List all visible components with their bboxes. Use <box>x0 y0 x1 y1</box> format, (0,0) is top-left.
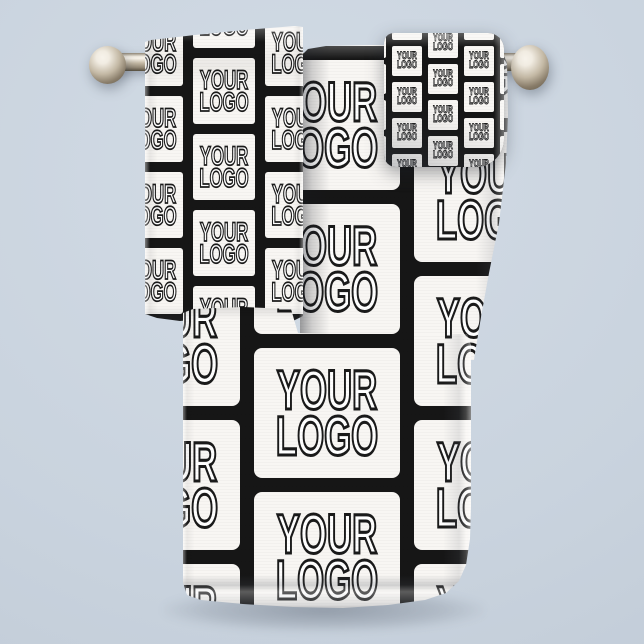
logo-tile: YOURLOGO <box>464 46 494 76</box>
logo-placeholder-text: YOURLOGO <box>398 33 417 40</box>
logo-placeholder-text: YOURLOGO <box>470 46 489 76</box>
logo-text-line2: LOGO <box>397 97 417 107</box>
logo-tile: YOURLOGO <box>392 82 422 112</box>
logo-pattern-small: YOURLOGOYOURLOGOYOURLOGOYOURLOGOYOURLOGO… <box>384 33 504 167</box>
logo-placeholder-text: YOURLOGO <box>434 64 453 94</box>
logo-tile: YOURLOGO <box>464 118 494 148</box>
logo-text-line2: LOGO <box>433 151 453 161</box>
logo-tile: YOURLOGO <box>428 100 458 130</box>
logo-text-line2: LOGO <box>469 61 489 71</box>
logo-text-line2: LOGO <box>199 91 248 113</box>
logo-tile: YOURLOGO <box>384 33 386 58</box>
logo-text-line2: LOGO <box>397 61 417 71</box>
logo-placeholder-text: YOURLOGO <box>398 46 417 76</box>
logo-pattern-medium: YOURLOGOYOURLOGOYOURLOGOYOURLOGOYOURLOGO… <box>145 26 303 322</box>
bath-towel-front: YOURLOGOYOURLOGOYOURLOGOYOURLOGOYOURLOGO… <box>183 307 471 613</box>
logo-placeholder-text: YOURLOGO <box>470 33 489 40</box>
logo-text-line2: LOGO <box>433 79 453 89</box>
logo-placeholder-text: YOURLOGO <box>470 118 489 148</box>
logo-placeholder-text: YOURLOGO <box>434 33 453 58</box>
logo-tile: YOURLOGO <box>254 348 400 478</box>
logo-tile: YOURLOGO <box>500 100 504 130</box>
logo-tile: YOURLOGO <box>384 136 386 166</box>
logo-text-line2: LOGO <box>397 133 417 143</box>
logo-tile: YOURLOGO <box>500 33 504 58</box>
towel-bar-left-finial <box>89 46 126 84</box>
logo-text-line2: LOGO <box>433 115 453 125</box>
logo-placeholder-text: YOURLOGO <box>205 134 243 200</box>
towel-bar-right-finial <box>511 45 549 90</box>
hand-towel: YOURLOGOYOURLOGOYOURLOGOYOURLOGOYOURLOGO… <box>145 26 303 322</box>
logo-pattern-large: YOURLOGOYOURLOGOYOURLOGOYOURLOGOYOURLOGO… <box>183 307 471 613</box>
logo-tile: YOURLOGO <box>254 492 400 622</box>
washcloth: YOURLOGOYOURLOGOYOURLOGOYOURLOGOYOURLOGO… <box>384 33 504 167</box>
logo-placeholder-text: YOURLOGO <box>434 136 453 166</box>
logo-text-line2: LOGO <box>469 97 489 107</box>
logo-placeholder-text: YOURLOGO <box>434 100 453 130</box>
logo-placeholder-text: YOURLOGO <box>398 82 417 112</box>
logo-tile: YOURLOGO <box>500 64 504 94</box>
logo-placeholder-text: YOURLOGO <box>470 154 489 167</box>
logo-tile: YOURLOGO <box>464 154 494 167</box>
logo-tile: YOURLOGO <box>193 134 255 200</box>
logo-placeholder-text: YOURLOGO <box>398 118 417 148</box>
logo-tile: YOURLOGO <box>392 33 422 40</box>
logo-text-line2: LOGO <box>199 167 248 189</box>
logo-text-line2: LOGO <box>469 33 489 35</box>
logo-tile: YOURLOGO <box>428 136 458 166</box>
logo-tile: YOURLOGO <box>384 64 386 94</box>
logo-tile: YOURLOGO <box>464 33 494 40</box>
logo-text-line1: YOUR <box>469 160 489 168</box>
logo-placeholder-text: YOURLOGO <box>282 492 373 622</box>
logo-tile: YOURLOGO <box>384 100 386 130</box>
logo-text-line1: YOUR <box>397 160 417 168</box>
logo-tile: YOURLOGO <box>428 33 458 58</box>
logo-text-line2: LOGO <box>276 413 378 459</box>
logo-text-line2: LOGO <box>469 133 489 143</box>
logo-tile: YOURLOGO <box>500 136 504 166</box>
logo-tile: YOURLOGO <box>193 58 255 124</box>
logo-tile: YOURLOGO <box>193 210 255 276</box>
logo-placeholder-text: YOURLOGO <box>205 210 243 276</box>
logo-text-line2: LOGO <box>199 243 248 265</box>
logo-text-line2: LOGO <box>276 557 378 603</box>
logo-placeholder-text: YOURLOGO <box>470 82 489 112</box>
logo-tile: YOURLOGO <box>428 64 458 94</box>
logo-text-line2: LOGO <box>397 33 417 35</box>
logo-placeholder-text: YOURLOGO <box>282 348 373 478</box>
logo-text-line2: LOGO <box>433 43 453 53</box>
logo-tile: YOURLOGO <box>392 154 422 167</box>
logo-placeholder-text: YOURLOGO <box>398 154 417 167</box>
logo-placeholder-text: YOURLOGO <box>205 58 243 124</box>
logo-tile: YOURLOGO <box>464 82 494 112</box>
logo-tile: YOURLOGO <box>392 118 422 148</box>
logo-tile: YOURLOGO <box>392 46 422 76</box>
bathroom-towel-set-mockup: YOURLOGOYOURLOGOYOURLOGOYOURLOGOYOURLOGO… <box>0 0 644 644</box>
